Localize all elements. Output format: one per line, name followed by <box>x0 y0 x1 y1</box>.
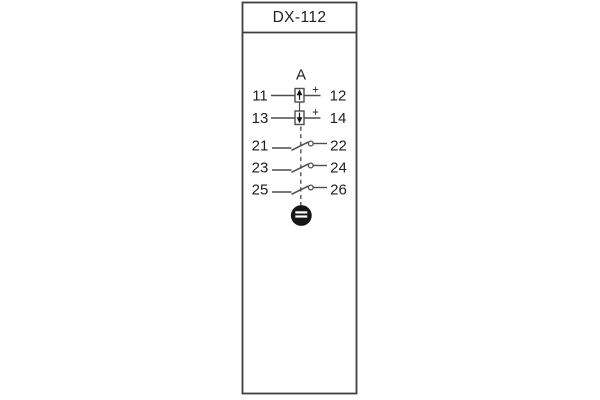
terminal-label-right: 26 <box>330 182 347 199</box>
terminal-row: 21 22 <box>252 138 347 155</box>
group-label: A <box>296 67 306 84</box>
terminal-label-left: 13 <box>252 110 269 127</box>
terminal-label-right: 14 <box>330 110 347 127</box>
terminal-row: 23 24 <box>252 160 347 177</box>
terminal-label-left: 11 <box>252 88 268 105</box>
no-contact-icon <box>292 163 314 172</box>
terminal-label-left: 25 <box>252 182 269 199</box>
device-model-label: DX-112 <box>273 9 327 26</box>
terminal-label-left: 21 <box>252 138 269 155</box>
polarized-element-up-icon <box>295 89 304 103</box>
terminal-label-left: 23 <box>252 160 269 177</box>
terminal-row: 25 26 <box>252 182 347 199</box>
no-contact-icon <box>292 141 314 150</box>
polarity-plus-label: + <box>312 85 319 97</box>
terminal-row: 11 + 12 <box>252 85 346 105</box>
schematic-canvas: DX-112 A 11 + 12 13 <box>0 0 600 400</box>
no-contact-icon <box>292 185 314 194</box>
polarized-element-down-icon <box>295 111 304 125</box>
polarity-plus-label: + <box>312 107 319 119</box>
terminal-label-right: 22 <box>330 138 347 155</box>
terminal-label-right: 24 <box>330 160 347 177</box>
terminal-label-right: 12 <box>330 88 347 105</box>
ground-terminal-icon <box>291 202 311 225</box>
